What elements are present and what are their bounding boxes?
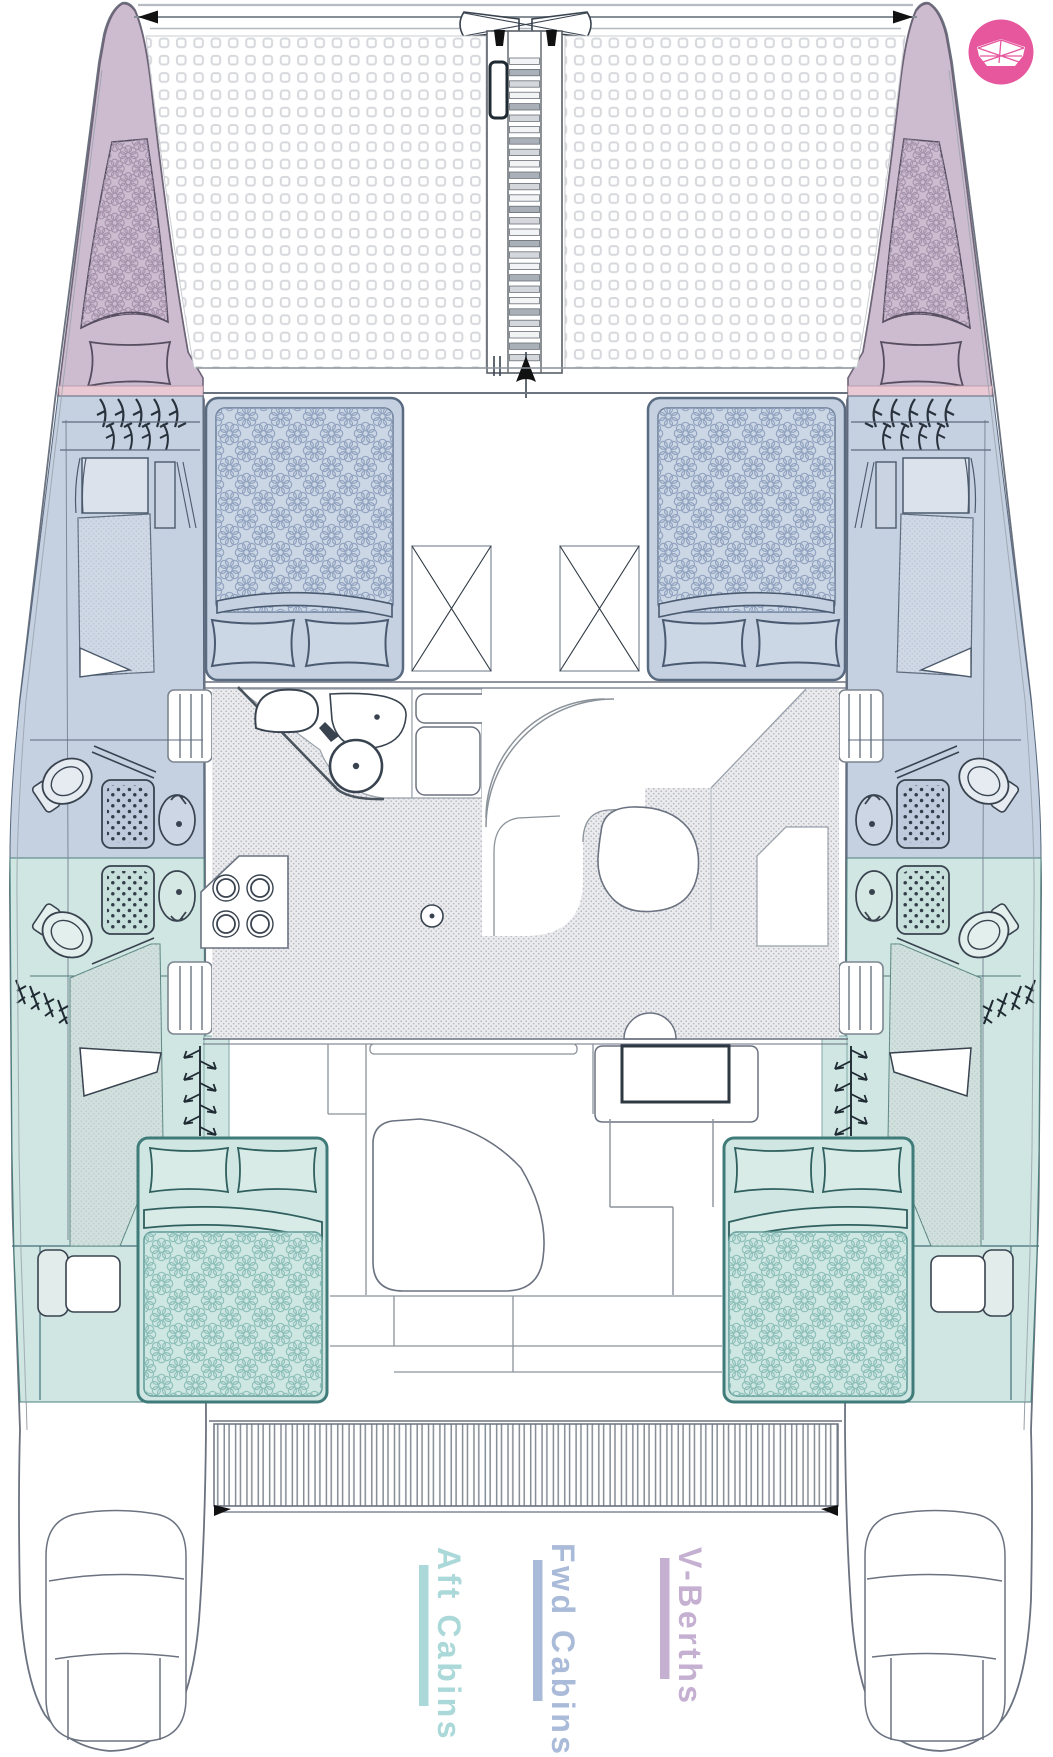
svg-text:V-Berths: V-Berths xyxy=(672,1547,708,1707)
svg-text:Aft Cabins: Aft Cabins xyxy=(431,1547,467,1742)
svg-text:Fwd Cabins: Fwd Cabins xyxy=(545,1543,581,1757)
